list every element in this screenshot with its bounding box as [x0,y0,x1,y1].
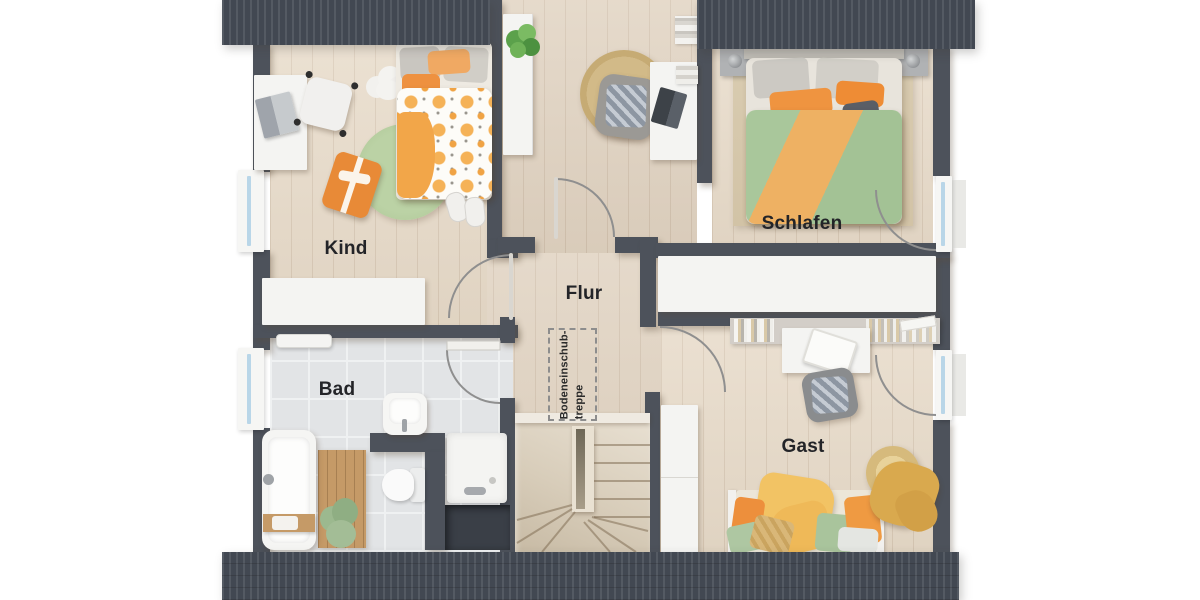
room-label-gast: Gast [763,436,843,458]
roof-band-top-right [697,0,975,49]
attic-hatch-label: Bodeneinschub- treppe [558,330,588,419]
shower-tray [447,433,507,503]
room-label-schlafen: Schlafen [742,213,862,235]
window-right-2-glass [941,356,945,414]
kind-sideboard [262,278,425,325]
window-left-2 [238,348,264,430]
wall-bath-partition-v [425,452,445,550]
shower-handle [464,487,486,495]
toilet-bowl [382,469,414,501]
window-right-1-sill [952,180,966,248]
window-door-right-1 [936,176,952,252]
bathtub-faucet [263,474,274,485]
window-left-1 [238,170,264,252]
gast-desk-chair [800,366,860,424]
kind-duvet-fold [397,112,435,198]
gast-chair-pillow [811,376,849,414]
roof-band-bottom [222,552,959,600]
wall-bath-partition-h [370,433,445,452]
window-left-1-glass [247,176,251,246]
room-label-kind: Kind [306,238,386,260]
wall-niche-south-left [498,237,535,253]
washbasin-faucet [402,419,407,432]
schlafen-lamp-left [728,54,742,68]
shower-drain [489,477,496,484]
schlafen-wardrobe [658,256,936,312]
attic-hatch-outline: Bodeneinschub- treppe [548,328,597,421]
schlafen-duvet [746,110,902,224]
gast-pillow-pale [837,527,879,554]
bathtub-caddy [263,514,315,532]
kind-bed [396,42,492,200]
gast-wardrobe [661,405,698,553]
schlafen-bed [744,46,904,226]
room-label-flur: Flur [544,283,624,305]
window-left-2-glass [247,354,251,424]
washbasin [383,393,427,435]
wall-flur-wardrobe [640,240,656,327]
kind-slipper-2 [463,196,486,228]
kind-pillow-orange-dot [427,49,471,76]
floorplan-canvas: Bodeneinschub- treppe Kind Schlafen Flur… [0,0,1200,600]
roof-band-top-left [222,0,490,45]
niche-books-1 [675,16,699,44]
bathtub [262,430,316,550]
staircase-spine [572,426,594,512]
niche-armchair-pillow [605,84,646,127]
gast-daybed [728,488,884,552]
niche-books-2 [676,66,698,84]
window-right-2-sill [952,354,966,416]
room-label-bad: Bad [297,379,377,401]
toilet [382,466,426,504]
bath-storage-niche [445,505,510,550]
window-door-right-2 [936,350,952,420]
gast-books-2 [866,319,900,342]
schlafen-lamp-right [906,54,920,68]
bath-green-towel-pile [320,498,360,550]
window-right-1-glass [941,182,945,246]
wall-bad-jamb [500,317,515,343]
wall-outer-right-1 [933,45,950,176]
niche-plant [504,22,544,62]
gast-books-1 [734,319,774,342]
bath-towel-rail [276,334,332,348]
